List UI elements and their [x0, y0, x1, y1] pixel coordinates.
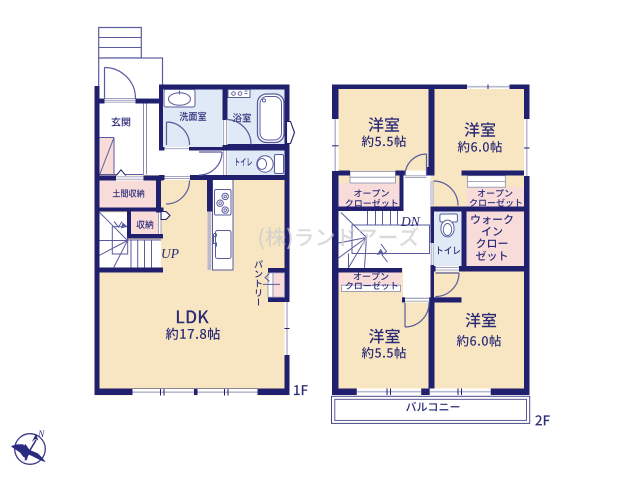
svg-text:N: N — [37, 429, 45, 439]
svg-text:DN: DN — [400, 214, 421, 229]
svg-text:UP: UP — [161, 246, 179, 261]
